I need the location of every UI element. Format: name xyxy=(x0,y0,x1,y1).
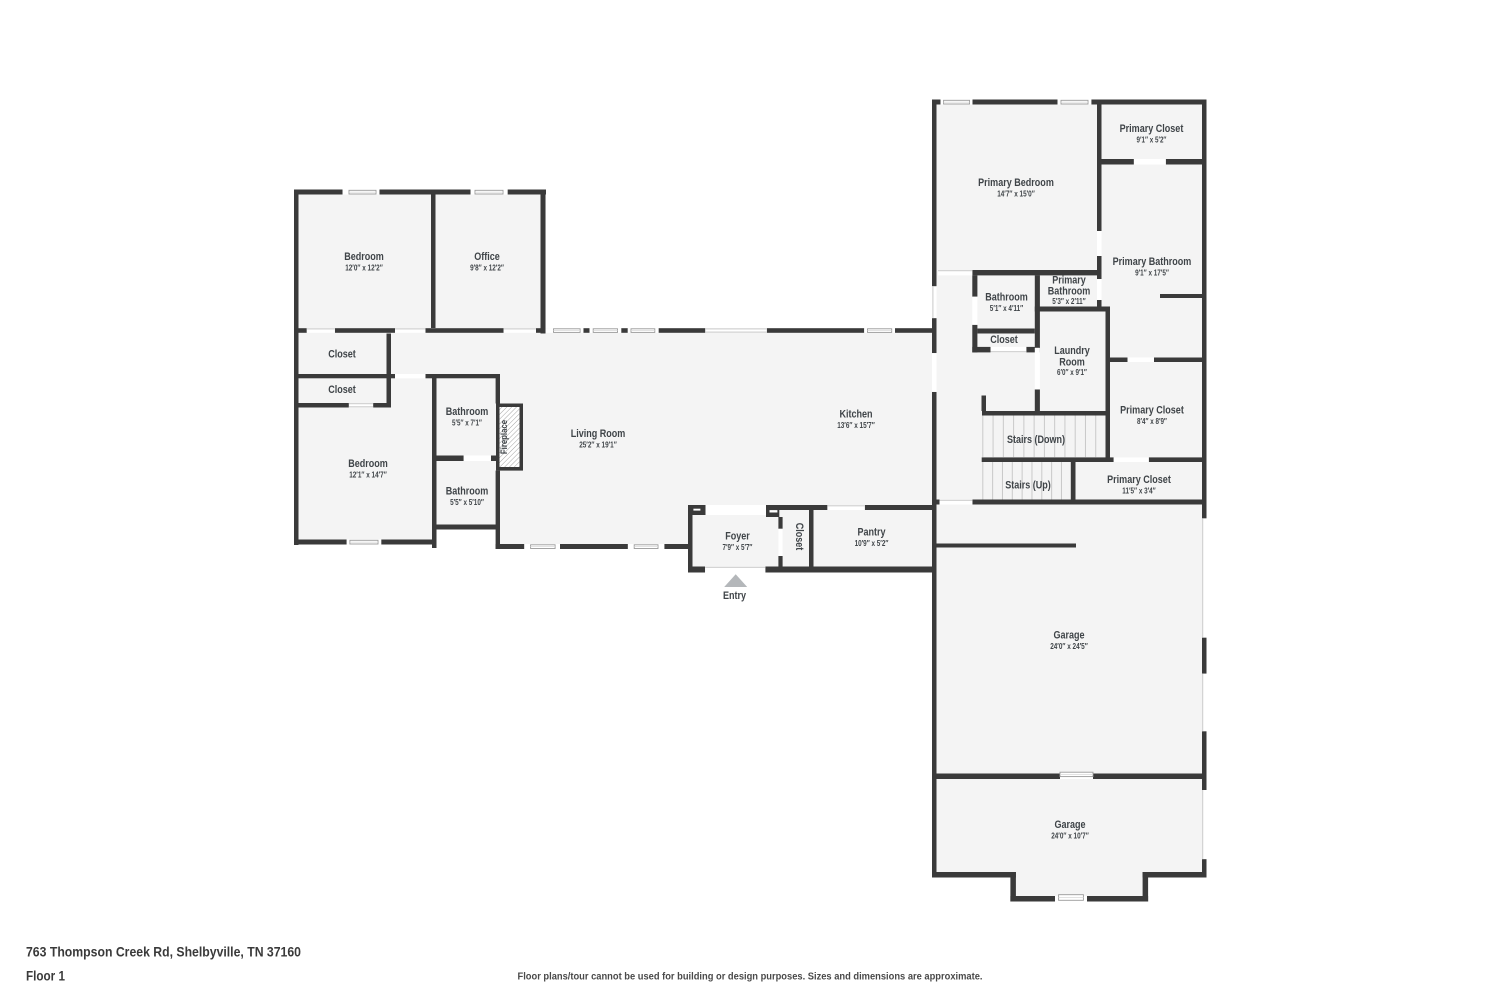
svg-text:763 Thompson Creek Rd, Shelbyv: 763 Thompson Creek Rd, Shelbyville, TN 3… xyxy=(26,944,301,960)
svg-text:Closet: Closet xyxy=(328,348,356,360)
svg-text:Primary Bedroom: Primary Bedroom xyxy=(978,177,1054,189)
svg-text:7′9″ x 5′7″: 7′9″ x 5′7″ xyxy=(723,542,753,552)
svg-text:Living Room: Living Room xyxy=(571,428,626,440)
svg-text:9′1″ x 5′2″: 9′1″ x 5′2″ xyxy=(1137,135,1167,145)
svg-text:Closet: Closet xyxy=(990,334,1018,346)
svg-text:5′5″ x 5′10″: 5′5″ x 5′10″ xyxy=(450,497,484,507)
svg-text:Closet: Closet xyxy=(328,384,356,396)
svg-text:24′0″ x 10′7″: 24′0″ x 10′7″ xyxy=(1051,831,1089,841)
svg-text:Stairs (Up): Stairs (Up) xyxy=(1005,480,1051,492)
svg-text:5′5″ x 7′1″: 5′5″ x 7′1″ xyxy=(452,418,482,428)
svg-text:Office: Office xyxy=(474,251,500,263)
svg-text:10′9″ x 5′2″: 10′9″ x 5′2″ xyxy=(855,538,889,548)
svg-text:13′6″ x 15′7″: 13′6″ x 15′7″ xyxy=(837,420,875,430)
svg-text:24′0″ x 24′5″: 24′0″ x 24′5″ xyxy=(1050,641,1088,651)
svg-text:Floor plans/tour cannot be use: Floor plans/tour cannot be used for buil… xyxy=(518,972,983,983)
svg-text:25′2″ x 19′1″: 25′2″ x 19′1″ xyxy=(579,440,617,450)
svg-text:9′1″ x 17′5″: 9′1″ x 17′5″ xyxy=(1135,268,1169,278)
svg-text:Primary Closet: Primary Closet xyxy=(1120,123,1184,135)
svg-text:12′1″ x 14′7″: 12′1″ x 14′7″ xyxy=(349,470,387,480)
svg-text:Fireplace: Fireplace xyxy=(499,420,510,454)
svg-text:14′7″ x 15′0″: 14′7″ x 15′0″ xyxy=(997,189,1035,199)
svg-text:Bedroom: Bedroom xyxy=(348,458,388,470)
svg-text:Closet: Closet xyxy=(793,523,805,551)
svg-text:5′3″ x 2′11″: 5′3″ x 2′11″ xyxy=(1052,296,1085,306)
svg-text:Pantry: Pantry xyxy=(857,526,886,538)
svg-text:Bathroom: Bathroom xyxy=(446,485,489,497)
svg-text:Bathroom: Bathroom xyxy=(446,406,489,418)
svg-text:Laundry: Laundry xyxy=(1054,345,1090,357)
svg-text:Primary Closet: Primary Closet xyxy=(1120,404,1184,416)
svg-text:12′0″ x 12′2″: 12′0″ x 12′2″ xyxy=(345,263,383,273)
svg-text:Stairs (Down): Stairs (Down) xyxy=(1007,434,1065,446)
svg-text:Primary Bathroom: Primary Bathroom xyxy=(1113,256,1192,268)
svg-text:Garage: Garage xyxy=(1053,629,1084,641)
svg-text:Primary Closet: Primary Closet xyxy=(1107,474,1171,486)
svg-text:9′8″ x 12′2″: 9′8″ x 12′2″ xyxy=(470,263,504,273)
svg-text:11′5″ x 3′4″: 11′5″ x 3′4″ xyxy=(1122,486,1155,496)
svg-text:Entry: Entry xyxy=(723,590,747,602)
svg-text:Bathroom: Bathroom xyxy=(985,291,1028,303)
svg-text:Floor 1: Floor 1 xyxy=(26,969,65,984)
svg-text:6′0″ x 9′1″: 6′0″ x 9′1″ xyxy=(1057,367,1087,377)
svg-text:5′1″ x 4′11″: 5′1″ x 4′11″ xyxy=(990,303,1023,313)
svg-text:Garage: Garage xyxy=(1054,819,1085,831)
svg-text:8′4″ x 8′9″: 8′4″ x 8′9″ xyxy=(1137,416,1167,426)
svg-text:Kitchen: Kitchen xyxy=(839,408,872,420)
svg-text:Foyer: Foyer xyxy=(725,530,750,542)
svg-text:Bedroom: Bedroom xyxy=(344,251,384,263)
